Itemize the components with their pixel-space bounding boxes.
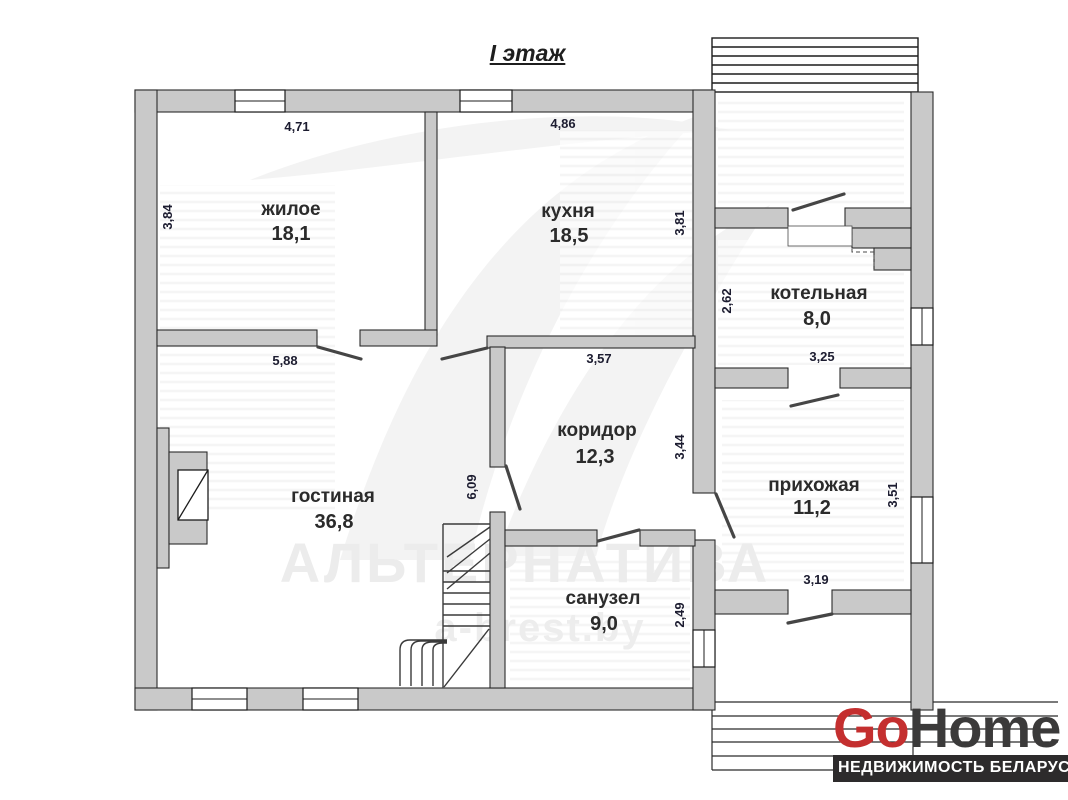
dim-prihozhaya-height: 3,51 — [885, 482, 900, 507]
dim-koridor-width: 3,57 — [586, 351, 611, 366]
wall — [693, 540, 715, 710]
wall — [425, 112, 437, 335]
dim-prihozhaya-width: 3,19 — [803, 572, 828, 587]
fireplace-symbol — [178, 470, 208, 520]
room-name-kotelnaya: котельная — [770, 283, 867, 304]
room-name-zhiloe: жилое — [260, 199, 320, 220]
logo-go-text: Go — [833, 696, 909, 759]
room-area-zhiloe: 18,1 — [272, 223, 311, 245]
porch-steps-top — [712, 38, 918, 92]
dim-zhiloe-width: 4,71 — [284, 119, 309, 134]
wall — [157, 330, 317, 346]
dim-kuhnya-width: 4,86 — [550, 116, 575, 131]
wall — [715, 590, 788, 614]
room-name-kuhnya: кухня — [541, 201, 594, 222]
wall — [135, 90, 710, 112]
gohome-wordmark: GoHome — [833, 702, 1066, 754]
floor-plan-page: АЛЬТЕРНАТИВА a-brest.by — [0, 0, 1068, 800]
room-area-prihozhaya: 11,2 — [793, 497, 831, 519]
wall — [693, 90, 715, 493]
wall — [360, 330, 437, 346]
logo-home-text: Home — [909, 696, 1061, 759]
door-threshold — [788, 226, 852, 246]
wall — [911, 92, 933, 710]
wall — [715, 208, 788, 228]
wall — [840, 368, 911, 388]
room-area-koridor: 12,3 — [576, 446, 615, 468]
gohome-logo: GoHome НЕДВИЖИМОСТЬ БЕЛАРУСИ — [833, 702, 1066, 782]
room-name-sanuzel: санузел — [566, 588, 641, 609]
fireplace-block — [157, 428, 169, 568]
room-area-gostinaya: 36,8 — [315, 511, 354, 533]
wall — [487, 336, 695, 348]
floor-title: I этаж — [420, 40, 635, 67]
room-area-kuhnya: 18,5 — [550, 225, 589, 247]
dim-kotelnaya-height: 2,62 — [719, 288, 734, 313]
dim-gostinaya-width: 5,88 — [272, 353, 297, 368]
dim-kotelnaya-width: 3,25 — [809, 349, 834, 364]
dim-sanuzel-height: 2,49 — [672, 602, 687, 627]
wall — [505, 530, 597, 546]
chimney-block — [852, 228, 911, 248]
wall — [135, 90, 157, 710]
wall — [490, 347, 505, 467]
room-name-koridor: коридор — [557, 420, 636, 441]
wall — [640, 530, 695, 546]
dim-koridor-height: 3,44 — [672, 434, 687, 460]
floor-plan-drawing: АЛЬТЕРНАТИВА a-brest.by — [0, 0, 1068, 800]
dim-gostinaya-height: 6,09 — [464, 474, 479, 499]
dim-zhiloe-height: 3,84 — [160, 204, 175, 230]
dim-kuhnya-height: 3,81 — [672, 210, 687, 235]
wall — [845, 208, 911, 228]
wall — [490, 512, 505, 688]
wall — [832, 590, 911, 614]
logo-tagline: НЕДВИЖИМОСТЬ БЕЛАРУСИ — [833, 755, 1068, 782]
room-name-gostinaya: гостиная — [291, 486, 375, 507]
room-name-prihozhaya: прихожая — [768, 475, 860, 496]
room-area-sanuzel: 9,0 — [590, 613, 618, 635]
chimney-block — [874, 248, 911, 270]
room-area-kotelnaya: 8,0 — [803, 308, 831, 330]
wall — [715, 368, 788, 388]
